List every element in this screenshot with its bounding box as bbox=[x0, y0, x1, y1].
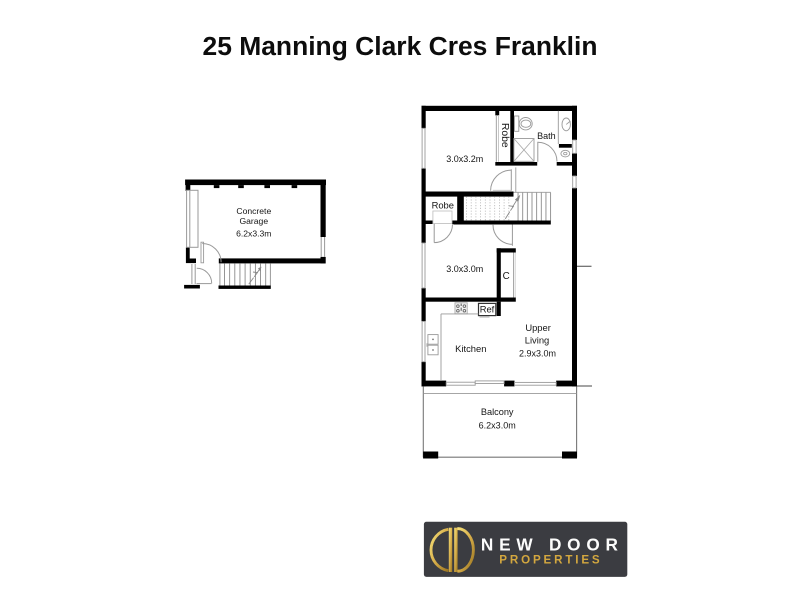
svg-text:Balcony: Balcony bbox=[481, 407, 514, 417]
svg-text:Robe: Robe bbox=[432, 199, 454, 210]
svg-text:2.9x3.0m: 2.9x3.0m bbox=[519, 348, 556, 358]
svg-text:NEW DOOR: NEW DOOR bbox=[481, 535, 624, 555]
svg-text:Garage: Garage bbox=[239, 216, 268, 226]
svg-text:3.0x3.0m: 3.0x3.0m bbox=[446, 264, 483, 274]
svg-text:Robe: Robe bbox=[499, 123, 510, 148]
svg-text:6.2x3.0m: 6.2x3.0m bbox=[479, 420, 516, 430]
svg-text:Kitchen: Kitchen bbox=[455, 343, 486, 354]
svg-text:25 Manning Clark Cres Franklin: 25 Manning Clark Cres Franklin bbox=[203, 33, 598, 61]
svg-text:Ref: Ref bbox=[480, 304, 495, 315]
svg-text:Concrete: Concrete bbox=[236, 206, 271, 216]
svg-text:PROPERTIES: PROPERTIES bbox=[499, 554, 602, 567]
svg-text:3.0x3.2m: 3.0x3.2m bbox=[446, 154, 483, 164]
svg-text:Upper: Upper bbox=[525, 322, 551, 333]
svg-text:6.2x3.3m: 6.2x3.3m bbox=[236, 228, 271, 238]
svg-text:Living: Living bbox=[525, 334, 550, 345]
svg-text:Bath: Bath bbox=[537, 131, 556, 141]
svg-text:C: C bbox=[503, 271, 510, 282]
